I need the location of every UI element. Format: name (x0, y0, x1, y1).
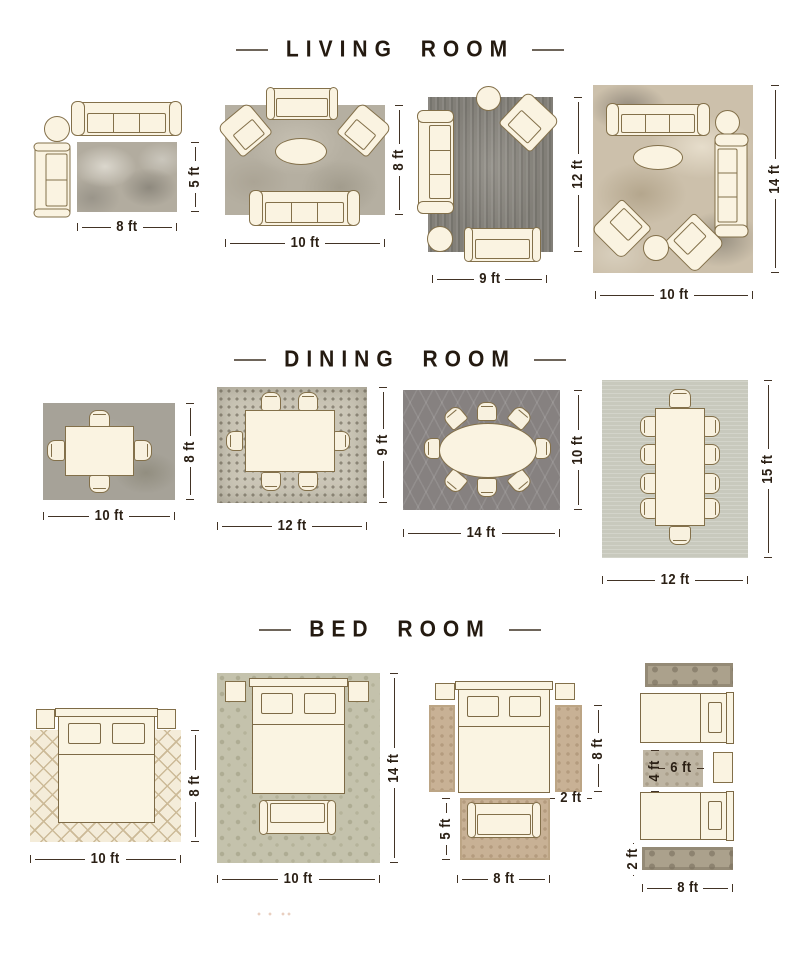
dimension-line (598, 710, 599, 733)
nightstand (713, 752, 733, 783)
sofa-arm (33, 142, 70, 151)
dimension-tick (180, 855, 181, 863)
dimension-label: 10 ft (284, 871, 313, 887)
sofa-arm (715, 225, 749, 238)
dimension-tick (225, 239, 226, 247)
dimension-tick (771, 85, 779, 86)
dimension-line (578, 102, 579, 154)
nightstand (348, 681, 369, 702)
bed-room-layout-3: 8 ft 2 ft 5 ft 8 ft (420, 665, 625, 897)
dimension-tick (379, 875, 380, 883)
sofa-arm (249, 190, 263, 226)
dimension-tick (176, 223, 177, 231)
headboard (726, 692, 734, 744)
dimension-label: 12 ft (570, 160, 586, 189)
dimension-label: 8 ft (590, 738, 606, 759)
dimension-line (230, 243, 285, 244)
dimension-line (383, 461, 384, 498)
dining-chair (535, 438, 551, 459)
coffee-table-oval (633, 145, 683, 170)
dimension-tick (442, 859, 450, 860)
sofa-arm (697, 103, 710, 136)
sofa-seat (717, 148, 737, 223)
dimension-tick (732, 884, 733, 892)
rug-width-dimension: 9 ft (432, 271, 547, 287)
rug-width-dimension: 10 ft (30, 851, 181, 867)
dimension-label: 15 ft (760, 454, 776, 483)
sofa-arm (266, 87, 275, 120)
dimension-tick (747, 576, 748, 584)
dining-table (655, 408, 705, 526)
runner-width-dimension: 2 ft (550, 790, 592, 806)
dining-chair (703, 416, 720, 437)
dining-chair (226, 431, 243, 451)
dining-chair (477, 402, 497, 421)
dimension-tick (191, 730, 199, 731)
sofa-seat (87, 113, 167, 134)
dimension-tick (390, 862, 398, 863)
dimension-tick (764, 557, 772, 558)
bench-arm (327, 800, 336, 835)
dining-chair (89, 475, 110, 493)
pillow (708, 702, 722, 733)
dimension-line (446, 845, 447, 855)
rug-width-dimension: 10 ft (43, 508, 175, 524)
bench-arm (259, 800, 268, 835)
bed-twin (640, 792, 733, 840)
dining-room-layout-2: 9 ft 12 ft (210, 378, 395, 543)
dimension-line (578, 195, 579, 247)
dimension-tick (764, 380, 772, 381)
bed-queen (458, 682, 550, 793)
dimension-line (399, 176, 400, 210)
sofa-arm (347, 190, 361, 226)
sofa-arm (464, 227, 473, 262)
dimension-line (462, 879, 488, 880)
pillow (708, 801, 722, 830)
dimension-tick (395, 105, 403, 106)
side-table-round (476, 86, 501, 111)
dimension-tick (574, 97, 582, 98)
dimension-tick (174, 512, 175, 520)
bench-seat (270, 803, 326, 824)
sofa-arm (71, 101, 85, 136)
dimension-tick (752, 291, 753, 299)
rug-width-dimension: 12 ft (217, 518, 367, 534)
dimension-label: 10 ft (94, 508, 123, 524)
nightstand (435, 683, 455, 700)
dimension-line (578, 470, 579, 505)
pillow (304, 693, 336, 714)
seating-rug-width-dimension: 8 ft (457, 871, 550, 887)
dimension-line (600, 295, 654, 296)
dimension-tick (217, 522, 218, 530)
watermark (256, 912, 296, 916)
dining-chair (333, 431, 350, 451)
dining-table (245, 410, 335, 472)
dimension-label: 8 ft (116, 219, 137, 235)
dining-table-oval (439, 423, 537, 478)
dimension-line (48, 516, 89, 517)
dimension-tick (771, 272, 779, 273)
sofa-2-seat (35, 144, 71, 217)
header-dash-left (234, 359, 266, 361)
side-table-round (427, 226, 453, 252)
header-dash-left (259, 629, 291, 631)
side-table-round (715, 110, 740, 135)
header-dash-right (509, 629, 541, 631)
sofa-arm (467, 802, 476, 838)
section-header-dining-room: DINING ROOM (0, 346, 800, 374)
bed-room-layout-2: 14 ft 10 ft (200, 662, 395, 907)
dimension-tick (574, 251, 582, 252)
dimension-line (695, 580, 743, 581)
dimension-line (35, 859, 85, 860)
dining-table (65, 426, 134, 476)
pillow (467, 696, 499, 717)
bed-queen (252, 679, 345, 794)
dining-chair (703, 498, 720, 519)
dimension-line (82, 227, 111, 228)
sofa-arm (532, 802, 541, 838)
dining-room-layout-1: 8 ft 10 ft (30, 395, 205, 528)
sofa-3-seat (251, 191, 358, 226)
dimension-tick (559, 529, 560, 537)
dimension-line (143, 227, 172, 228)
sofa-3-seat (418, 112, 454, 212)
dimension-line (768, 489, 769, 553)
dimension-tick (574, 509, 582, 510)
dining-room-layout-4: 15 ft 12 ft (595, 373, 795, 603)
pillow (261, 693, 293, 714)
sheet-line (252, 724, 345, 725)
side-table-round (44, 116, 70, 142)
dimension-tick (191, 142, 199, 143)
sofa-3-seat (73, 102, 180, 136)
sofa-arm (417, 110, 454, 123)
dimension-line (222, 526, 272, 527)
header-dash-right (534, 359, 566, 361)
dining-chair (47, 440, 65, 461)
dimension-label: 14 ft (767, 164, 783, 193)
dimension-line (703, 888, 728, 889)
dimension-line (129, 516, 170, 517)
rug-height-dimension: 10 ft (570, 390, 586, 510)
dimension-line (394, 788, 395, 858)
sofa-arm (715, 134, 749, 147)
dimension-line (195, 735, 196, 770)
runner-height-dimension: 8 ft (590, 705, 606, 792)
dimension-label: 5 ft (438, 818, 454, 839)
dimension-tick (43, 512, 44, 520)
dining-chair (424, 438, 440, 459)
dimension-line (408, 533, 461, 534)
dimension-tick (457, 875, 458, 883)
dimension-label: 2 ft (625, 848, 641, 869)
dimension-line (697, 768, 704, 769)
living-room-layout-3: 12 ft 9 ft (405, 78, 590, 288)
dimension-line (325, 243, 380, 244)
sofa-2-seat (267, 88, 337, 120)
dimension-line (505, 279, 542, 280)
sofa-3-seat (608, 104, 708, 136)
dimension-tick (390, 673, 398, 674)
pillow (509, 696, 541, 717)
nightstand (225, 681, 246, 702)
dimension-label: 10 ft (570, 435, 586, 464)
dimension-tick (651, 750, 659, 751)
sofa-seat (265, 202, 345, 223)
rug-width-dimension: 10 ft (217, 871, 380, 887)
dimension-label: 10 ft (659, 287, 688, 303)
dimension-line (519, 879, 545, 880)
rug-height-dimension: 8 ft (182, 403, 198, 500)
sofa-arm (33, 208, 70, 217)
section-header-bed-room: BED ROOM (0, 616, 800, 644)
dimension-line (647, 888, 672, 889)
dimension-tick (366, 522, 367, 530)
dimension-tick (594, 791, 602, 792)
dining-chair (298, 472, 318, 491)
seating-rug-height-dimension: 5 ft (438, 798, 454, 860)
runner-height-dimension: 2 ft (625, 843, 641, 875)
pillow (68, 723, 101, 744)
dimension-line (694, 295, 748, 296)
dining-chair (703, 444, 720, 465)
sofa-seat (477, 814, 530, 835)
dimension-line (195, 147, 196, 161)
rug-width-dimension: 10 ft (225, 235, 385, 251)
coffee-table-oval (275, 138, 327, 165)
dimension-label: 10 ft (91, 851, 120, 867)
dimension-line (394, 678, 395, 748)
dimension-tick (379, 502, 387, 503)
dimension-tick (191, 211, 199, 212)
dimension-tick (77, 223, 78, 231)
sheet-line (58, 754, 155, 755)
dimension-line (383, 392, 384, 429)
dining-chair (703, 473, 720, 494)
dimension-line (195, 193, 196, 207)
rug-width-dimension: 12 ft (602, 572, 748, 588)
dimension-label: 14 ft (467, 525, 496, 541)
dimension-tick (384, 239, 385, 247)
headboard (726, 791, 734, 841)
dimension-line (446, 803, 447, 813)
dimension-tick (594, 705, 602, 706)
sofa-seat (429, 125, 451, 200)
dining-chair (477, 478, 497, 497)
dimension-label: 8 ft (677, 880, 698, 896)
living-room-layout-1: 5 ft 8 ft (20, 88, 210, 260)
dimension-tick (379, 387, 387, 388)
bed-room-layout-1: 8 ft 10 ft (15, 692, 210, 880)
dining-chair (669, 389, 691, 408)
rug-height-dimension: 9 ft (375, 387, 391, 503)
dimension-tick (595, 291, 596, 299)
dimension-label: 14 ft (386, 753, 402, 782)
rug-height-dimension: 5 ft (187, 142, 203, 212)
sofa-seat (475, 239, 531, 260)
dimension-tick (186, 403, 194, 404)
headboard (249, 678, 348, 687)
header-dash-left (236, 49, 268, 51)
headboard (455, 681, 553, 690)
nightstand (157, 709, 176, 729)
dimension-line (578, 395, 579, 430)
dimension-label: 6 ft (670, 760, 691, 776)
dimension-label: 12 ft (660, 572, 689, 588)
dimension-tick (602, 576, 603, 584)
dimension-tick (549, 875, 550, 883)
rug-height-dimension: 15 ft (760, 380, 776, 558)
dimension-line (190, 408, 191, 436)
dimension-line (598, 764, 599, 787)
runner-rug (645, 663, 733, 687)
dimension-line (607, 580, 655, 581)
living-room-layout-4: 14 ft 10 ft (593, 73, 798, 305)
runner-rug (642, 847, 733, 870)
section-title: LIVING ROOM (286, 37, 514, 63)
pillow (112, 723, 145, 744)
dimension-line (319, 879, 375, 880)
dimension-line (312, 526, 362, 527)
nightstand (36, 709, 55, 729)
dining-chair (261, 472, 281, 491)
header-dash-right (532, 49, 564, 51)
rug-size-guide-infographic: LIVING ROOM 5 ft 8 ft (0, 0, 800, 978)
sofa-seat (621, 114, 696, 133)
bed-room-layout-4: 4 ft 6 ft 2 ft 8 ft (628, 655, 798, 907)
dimension-tick (642, 884, 643, 892)
dimension-label: 8 ft (182, 441, 198, 462)
runner-rug (429, 705, 455, 792)
dimension-label: 9 ft (375, 434, 391, 455)
living-room-layout-2: 8 ft 10 ft (213, 83, 403, 263)
nightstand (555, 683, 575, 700)
dimension-line (502, 533, 555, 534)
dimension-label: 12 ft (277, 518, 306, 534)
rug-width-dimension: 10 ft (595, 287, 753, 303)
dimension-tick (217, 875, 218, 883)
dimension-tick (30, 855, 31, 863)
rug-width-dimension: 8 ft (77, 219, 177, 235)
dimension-tick (432, 275, 433, 283)
dimension-line (550, 798, 555, 799)
dimension-line (195, 802, 196, 837)
dimension-line (399, 110, 400, 144)
dimension-label: 5 ft (187, 166, 203, 187)
bed-queen (58, 709, 155, 823)
sofa-seat (46, 153, 68, 207)
section-header-living-room: LIVING ROOM (0, 36, 800, 64)
dimension-line (222, 879, 278, 880)
rug (77, 142, 177, 212)
dimension-label: 8 ft (493, 871, 514, 887)
rug-width-dimension: 14 ft (403, 525, 560, 541)
dimension-label: 9 ft (479, 271, 500, 287)
dimension-tick (442, 798, 450, 799)
dimension-line (658, 768, 665, 769)
accent-rug-width-dimension: 6 ft (658, 760, 704, 776)
dimension-line (190, 467, 191, 495)
dimension-line (775, 90, 776, 159)
side-table-round (643, 235, 669, 261)
sofa-arm (329, 87, 338, 120)
dimension-label: 2 ft (560, 790, 581, 806)
dimension-line (587, 798, 592, 799)
sofa-2-seat (465, 228, 540, 262)
dining-chair (669, 526, 691, 545)
sheet-line (458, 726, 550, 727)
sofa-arm (606, 103, 619, 136)
dining-chair (261, 392, 281, 411)
bed-twin (640, 693, 733, 743)
dimension-label: 10 ft (290, 235, 319, 251)
sofa-seat (276, 98, 328, 117)
rug-height-dimension: 14 ft (386, 673, 402, 863)
bench (260, 800, 335, 834)
sofa-3-seat (715, 136, 748, 236)
dimension-line (775, 199, 776, 268)
headboard (55, 708, 158, 717)
dimension-tick (191, 841, 199, 842)
dimension-line (126, 859, 176, 860)
runner-width-dimension: 8 ft (642, 880, 733, 896)
sofa-arm (417, 201, 454, 214)
runner-rug (555, 705, 582, 792)
dining-chair (298, 392, 318, 411)
dimension-tick (395, 214, 403, 215)
rug-height-dimension: 14 ft (767, 85, 783, 273)
sofa-arm (169, 101, 183, 136)
section-title: BED ROOM (309, 617, 491, 643)
sofa-arm (532, 227, 541, 262)
dining-room-layout-3: 10 ft 14 ft (400, 383, 590, 543)
section-title: DINING ROOM (284, 347, 516, 373)
dimension-tick (186, 499, 194, 500)
rug-height-dimension: 12 ft (570, 97, 586, 252)
dimension-line (437, 279, 474, 280)
dining-chair (134, 440, 152, 461)
dimension-tick (574, 390, 582, 391)
dimension-tick (403, 529, 404, 537)
dimension-tick (546, 275, 547, 283)
loveseat (468, 803, 540, 838)
dimension-line (768, 385, 769, 449)
